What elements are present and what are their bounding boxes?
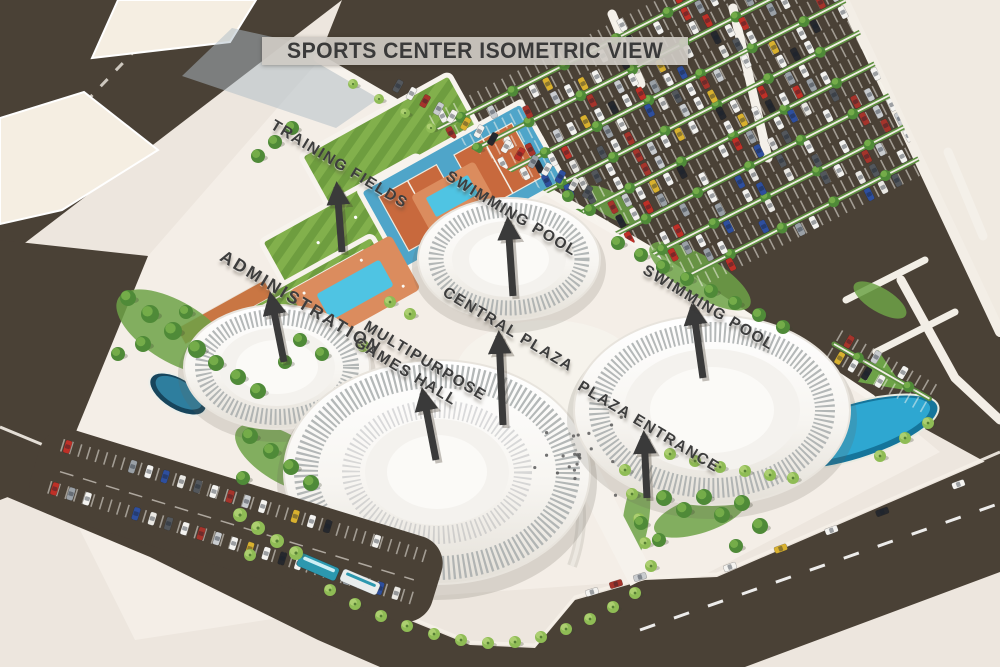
pedestrian — [533, 466, 536, 469]
pedestrian — [578, 457, 581, 460]
annotation-arrow-training-fields — [337, 187, 342, 252]
pedestrian — [545, 454, 548, 457]
pedestrian — [562, 454, 565, 457]
pedestrian — [556, 471, 559, 474]
pedestrian — [572, 434, 575, 437]
pedestrian — [573, 469, 576, 472]
pedestrian — [575, 463, 578, 466]
pedestrian — [577, 433, 580, 436]
annotation-arrow-swimming-pool-north — [508, 222, 513, 296]
pedestrian — [587, 432, 590, 435]
pedestrian — [573, 477, 576, 480]
pedestrian — [610, 423, 613, 426]
pedestrian — [611, 460, 614, 463]
title-text: SPORTS CENTER ISOMETRIC VIEW — [287, 38, 663, 64]
annotation-arrow-plaza-entrance — [644, 436, 647, 498]
pedestrian — [590, 447, 593, 450]
pedestrian — [545, 431, 548, 434]
sports-center-isometric-rendering: SPORTS CENTER ISOMETRIC VIEW TRAINING FI… — [0, 0, 1000, 667]
pedestrian — [576, 453, 579, 456]
title-banner: SPORTS CENTER ISOMETRIC VIEW — [262, 37, 688, 65]
annotation-arrow-central-plaza — [499, 336, 503, 425]
building-swimming-pool-east — [567, 315, 857, 519]
pedestrian — [614, 494, 617, 497]
pedestrian — [568, 465, 571, 468]
